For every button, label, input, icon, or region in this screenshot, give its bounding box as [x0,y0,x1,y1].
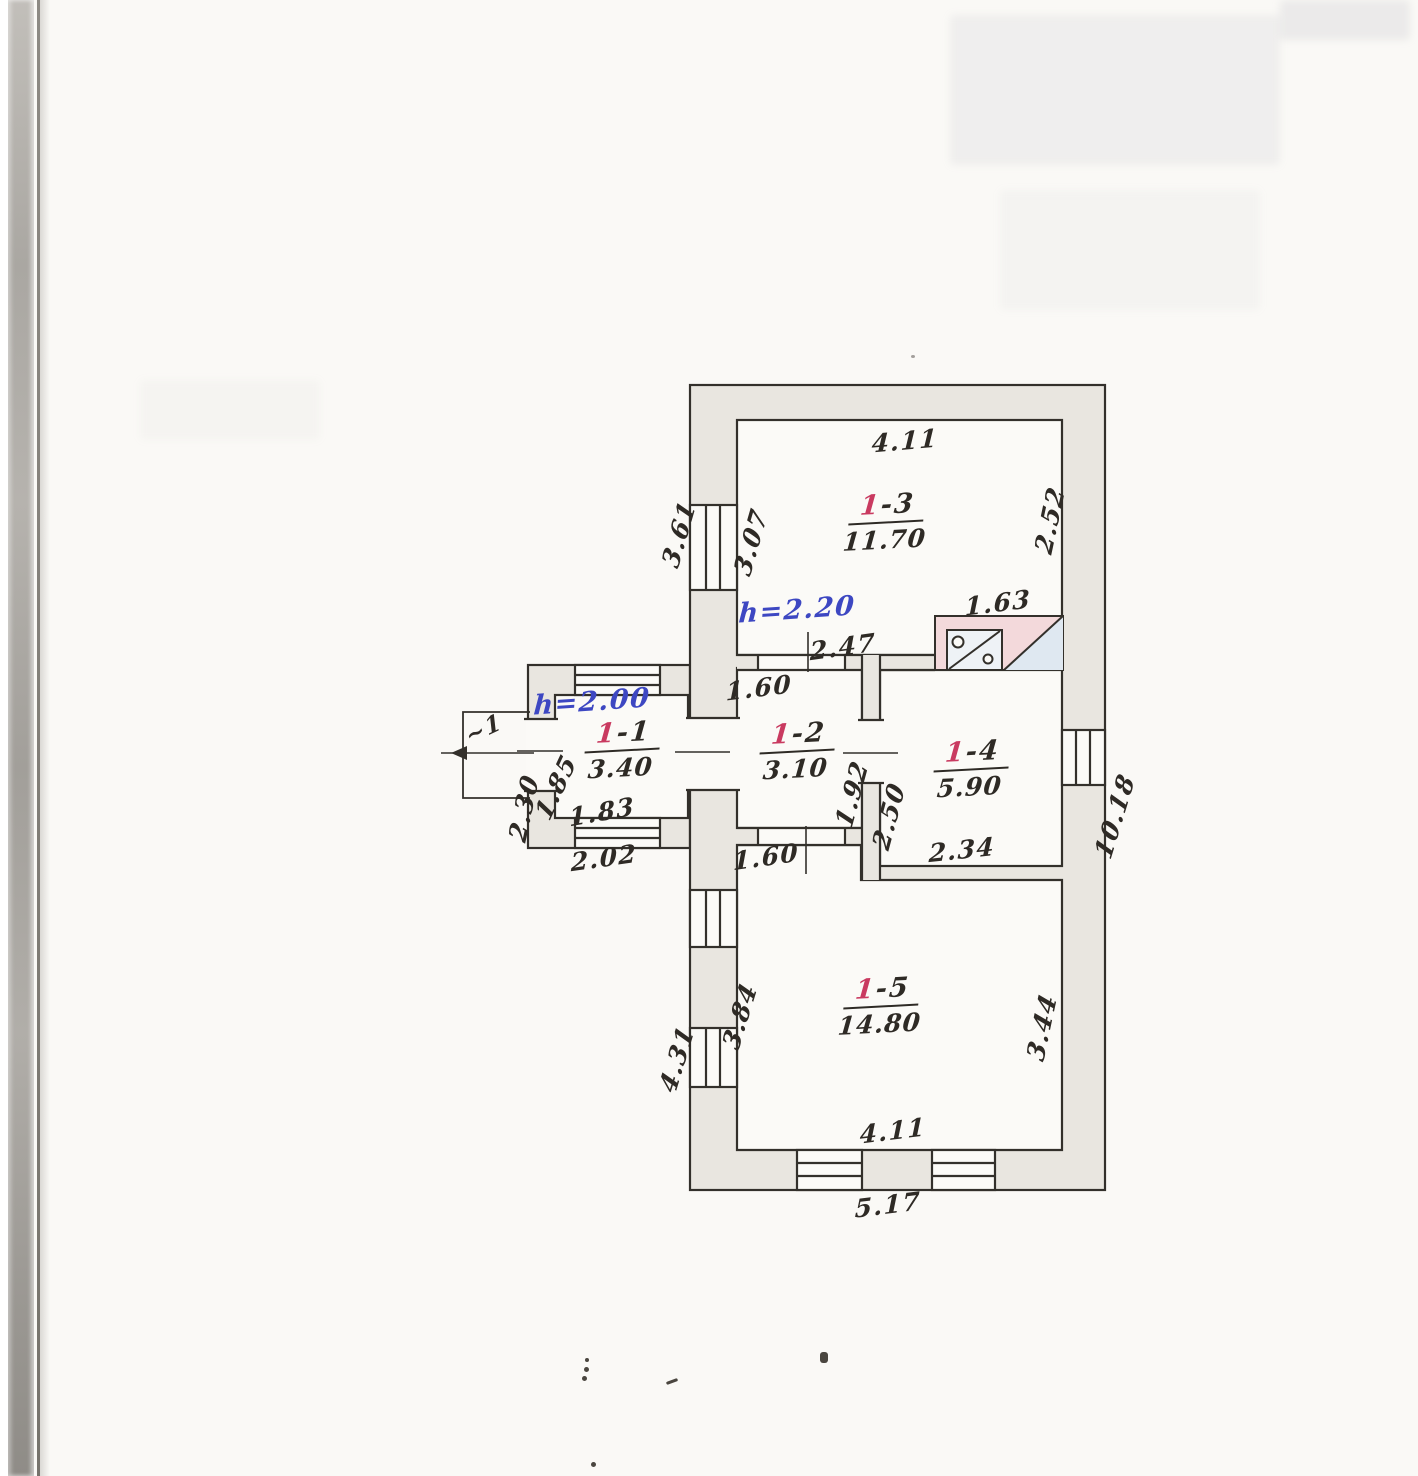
room-label-1-1: 1-1 3.40 [582,715,662,784]
room-number: 1-2 [760,716,838,754]
scanned-floor-plan-page: 1-1 3.40 1-2 3.10 1-3 11.70 1-4 5.90 1-5… [0,0,1418,1476]
room-label-1-4: 1-4 5.90 [931,734,1011,803]
dim-top-width: 4.11 [871,423,939,458]
room-area: 3.10 [757,753,834,786]
window-1-4-east [1062,730,1105,785]
window-1-5-west-upper [690,890,737,947]
room-number: 1-3 [849,487,927,525]
room-area: 14.80 [837,1007,923,1041]
room-number: 1-5 [844,971,922,1009]
door-1-1-1-2 [686,718,740,790]
room-number: 1-4 [934,734,1012,772]
window-1-5-south-left [797,1150,862,1190]
room-label-1-3: 1-3 11.70 [842,487,931,557]
stove-symbol [935,616,1063,670]
window-1-5-south-right [932,1150,995,1190]
room-label-1-5: 1-5 14.80 [837,971,926,1041]
floor-plan-drawing [0,0,1418,1476]
room-label-1-2: 1-2 3.10 [757,716,837,785]
room-area: 5.90 [931,771,1008,804]
room-number: 1-1 [585,715,663,753]
room-area: 3.40 [582,752,659,785]
room-area: 11.70 [842,523,928,557]
partition-lower [737,828,862,845]
